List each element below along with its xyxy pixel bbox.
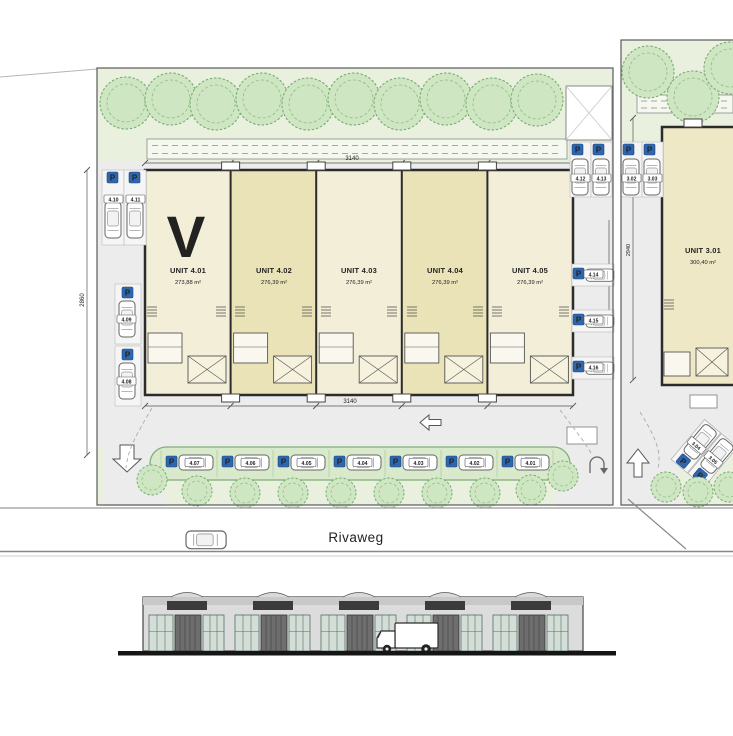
utility-box [567, 427, 597, 444]
dim-top-width: 3140 [345, 156, 359, 162]
main-building: V UNIT 4.01 273,88 m² UNIT 4.02 276,39 m… [145, 162, 573, 402]
unit-area: 276,39 m² [517, 280, 543, 286]
car-on-road [186, 531, 226, 549]
boundary-line [0, 69, 97, 77]
unit-area: 273,88 m² [175, 280, 201, 286]
unit-label: UNIT 4.04 [427, 266, 464, 275]
parking-stall-label: 4.03 [413, 461, 423, 467]
unit-label: UNIT 4.03 [341, 266, 377, 275]
parking-stall-label: 4.10 [108, 197, 118, 203]
unit-area: 276,39 m² [261, 280, 287, 286]
parking-stall-label: 4.12 [576, 176, 586, 182]
parking-stall-label: 4.15 [589, 318, 599, 324]
unit-label: UNIT 4.02 [256, 266, 292, 275]
parking-stall-label: 4.14 [589, 272, 599, 278]
utility-box [690, 395, 717, 408]
dim-left-depth: 2860 [80, 293, 86, 307]
parking-stall-label: 4.09 [121, 317, 131, 323]
unit-area: 300,40 m² [690, 260, 716, 266]
parking-stall-label: 4.06 [245, 461, 255, 467]
parking-right-top: 4.12 4.13 3.02 3.03 [570, 142, 663, 197]
road-rivaweg: Rivaweg [0, 508, 733, 556]
street-name-label: Rivaweg [328, 530, 383, 545]
parking-stall-label: 4.02 [469, 461, 479, 467]
parking-right-side: 4.14 4.15 4.16 [572, 264, 614, 379]
east-building: UNIT 3.01 300,40 m² [662, 119, 733, 385]
diagonal-boundary [628, 499, 686, 549]
parking-left-top: 4.10 4.11 [102, 170, 146, 245]
parking-stall-label: 4.13 [597, 176, 607, 182]
parking-stall-label: 4.08 [121, 379, 131, 385]
parking-stall-label: 3.02 [627, 176, 637, 182]
dim-parcel2-depth: 2940 [626, 244, 632, 256]
parking-stall-label: 4.05 [301, 461, 311, 467]
dim-bottom-width: 3140 [343, 399, 357, 405]
parking-stall-label: 3.03 [648, 176, 658, 182]
unit-label: UNIT 3.01 [685, 246, 721, 255]
parking-stall-label: 4.04 [357, 461, 367, 467]
unit-label: UNIT 4.05 [512, 266, 548, 275]
parking-stall-label: 4.07 [189, 461, 199, 467]
unit-area: 276,39 m² [346, 280, 372, 286]
unit-area: 276,39 m² [432, 280, 458, 286]
parking-stall-label: 4.01 [525, 461, 535, 467]
site-plan-canvas: P [0, 0, 733, 736]
parking-stall-label: 4.16 [589, 365, 599, 371]
street-parking-strip: 4.07 4.06 4.05 4.04 4.03 4.02 4.01 [150, 447, 570, 480]
elevation-drawing [118, 593, 616, 656]
parking-stall-label: 4.11 [131, 197, 141, 203]
ground-line [118, 651, 616, 656]
unit-label: UNIT 4.01 [170, 266, 206, 275]
revision-marker: V [167, 205, 206, 270]
